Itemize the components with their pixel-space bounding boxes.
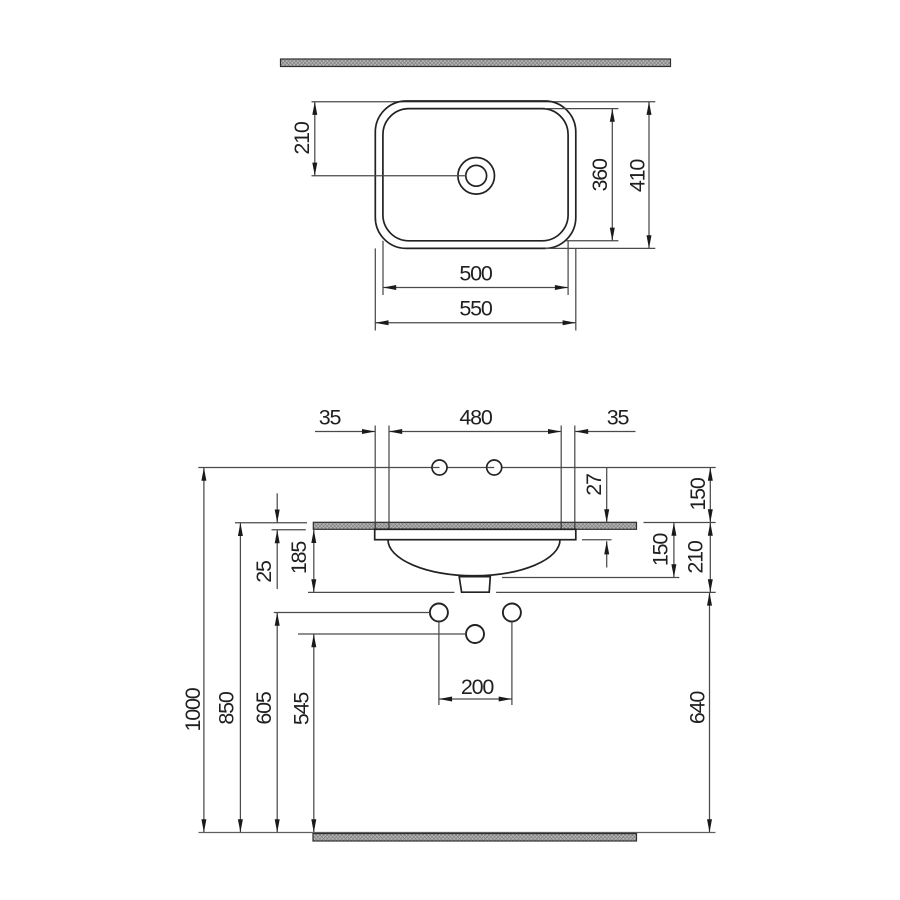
svg-text:185: 185 bbox=[287, 541, 311, 575]
svg-text:410: 410 bbox=[626, 159, 650, 193]
svg-text:35: 35 bbox=[607, 406, 630, 430]
svg-text:210: 210 bbox=[684, 540, 708, 574]
svg-text:605: 605 bbox=[252, 691, 276, 725]
svg-text:150: 150 bbox=[649, 533, 673, 567]
svg-text:25: 25 bbox=[252, 560, 276, 583]
svg-text:35: 35 bbox=[319, 406, 342, 430]
svg-text:150: 150 bbox=[686, 477, 710, 511]
svg-text:27: 27 bbox=[582, 474, 606, 496]
svg-text:360: 360 bbox=[588, 158, 612, 192]
svg-text:1000: 1000 bbox=[181, 687, 205, 731]
svg-text:545: 545 bbox=[290, 692, 314, 726]
svg-text:480: 480 bbox=[459, 406, 493, 430]
svg-text:550: 550 bbox=[459, 297, 493, 321]
svg-text:640: 640 bbox=[686, 691, 710, 725]
svg-text:850: 850 bbox=[215, 691, 239, 725]
svg-text:500: 500 bbox=[459, 262, 493, 286]
svg-text:200: 200 bbox=[461, 675, 495, 699]
svg-text:210: 210 bbox=[290, 121, 314, 155]
